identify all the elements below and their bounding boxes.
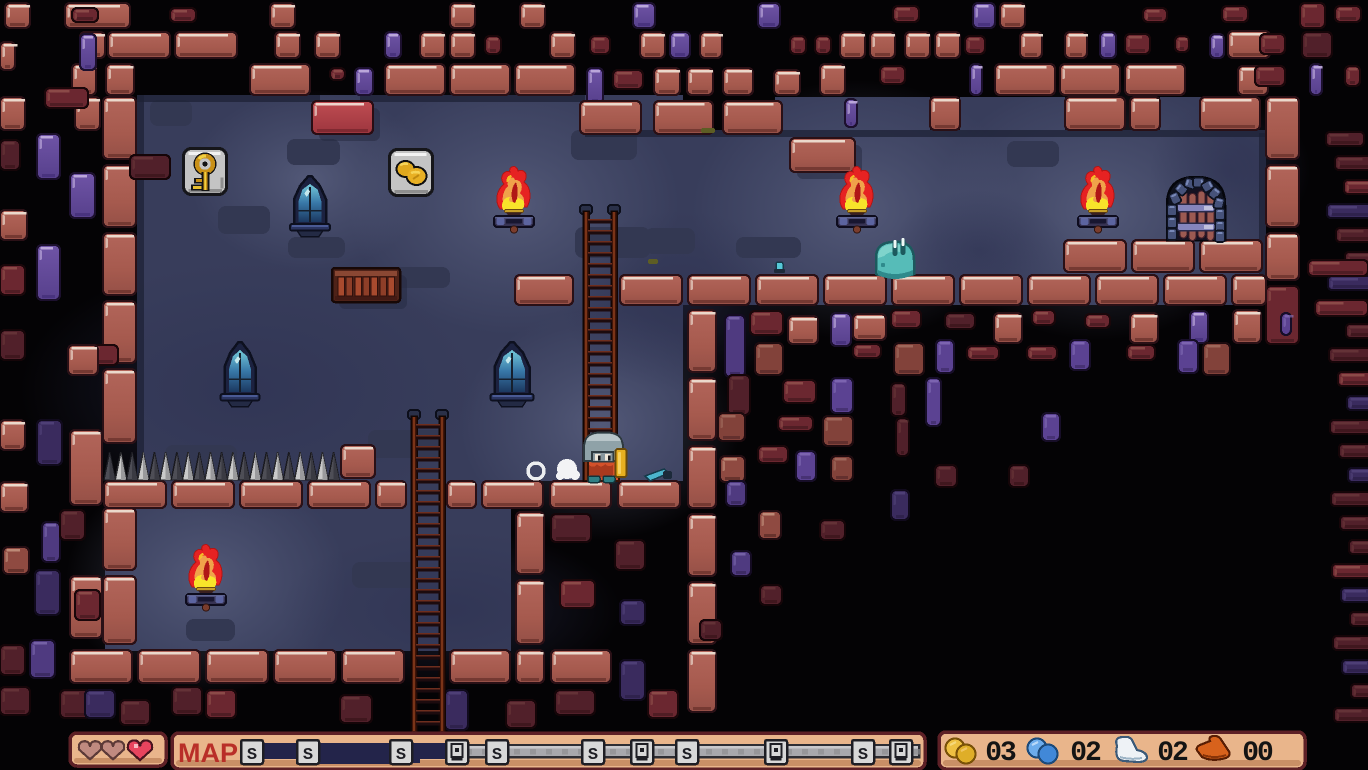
svg-text:00: 00 <box>1242 738 1273 769</box>
svg-text:S: S <box>396 746 406 765</box>
svg-text:S: S <box>247 746 257 765</box>
svg-text:MAP: MAP <box>178 738 238 768</box>
svg-text:S: S <box>588 746 598 765</box>
svg-text:S: S <box>303 746 313 765</box>
svg-text:02: 02 <box>1070 738 1101 769</box>
svg-text:S: S <box>492 746 502 765</box>
svg-text:02: 02 <box>1157 738 1188 769</box>
svg-text:S: S <box>682 746 692 765</box>
svg-text:S: S <box>858 746 868 765</box>
svg-text:03: 03 <box>985 738 1016 769</box>
